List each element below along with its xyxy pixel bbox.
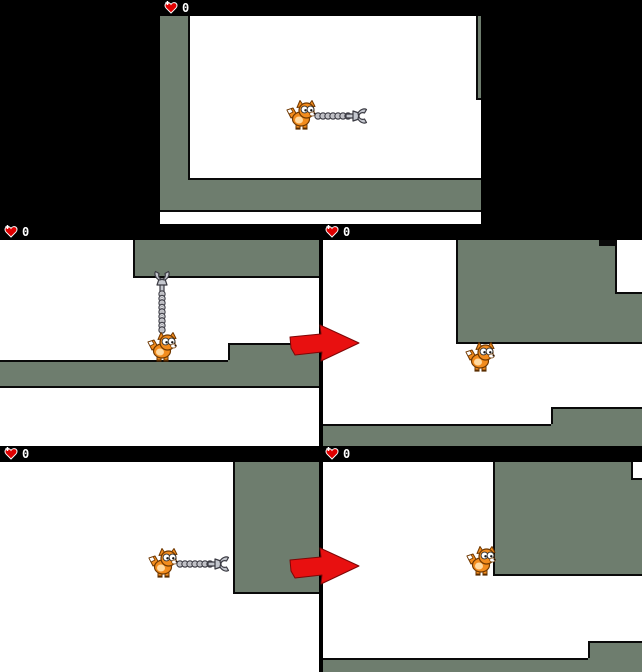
terrain-edge: [551, 407, 642, 409]
game-panel-bottom-right: 0: [321, 446, 642, 672]
terrain-edge: [160, 210, 481, 212]
hud-bar: 0: [321, 446, 642, 462]
terrain-floor: [0, 360, 319, 388]
terrain-edge: [188, 16, 190, 180]
game-viewport-bottom-left[interactable]: [0, 462, 321, 672]
hud-bar: 0: [160, 0, 481, 16]
terrain-floor: [323, 424, 642, 446]
game-viewport-top[interactable]: [160, 16, 481, 224]
terrain-edge: [0, 386, 319, 388]
terrain-edge: [228, 343, 230, 360]
terrain-edge: [615, 240, 617, 294]
grapple-claw-icon: [346, 109, 367, 123]
heart-icon: [325, 225, 339, 238]
fox-sprite: [287, 101, 316, 130]
game-panel-middle-right: 0: [321, 224, 642, 446]
terrain-edge: [599, 240, 617, 246]
terrain-edge: [0, 360, 228, 362]
health-counter: 0: [182, 1, 189, 15]
terrain-edge: [233, 462, 235, 594]
health-counter: 0: [343, 447, 350, 461]
game-viewport-bottom-right[interactable]: [321, 462, 642, 672]
red-arrow-icon: [288, 545, 362, 587]
game-panel-bottom-left: 0: [0, 446, 321, 672]
fox-player-sprite: [286, 98, 368, 132]
terrain-edge: [615, 292, 642, 294]
health-counter: 0: [22, 225, 29, 239]
health-counter: 0: [343, 225, 350, 239]
terrain-edge: [233, 592, 319, 594]
red-arrow-icon: [288, 322, 362, 364]
terrain-edge: [456, 240, 458, 344]
grapple-claw-icon: [155, 272, 169, 293]
terrain-edge: [133, 240, 135, 278]
fox-sprite: [149, 549, 178, 578]
fox-player-sprite: [465, 342, 495, 372]
fox-player-sprite: [148, 546, 230, 580]
terrain-edge: [631, 478, 642, 480]
hud-bar: 0: [321, 224, 642, 240]
heart-icon: [164, 1, 178, 14]
terrain-floor: [160, 180, 481, 210]
heart-icon: [325, 447, 339, 460]
terrain-edge: [493, 574, 642, 576]
heart-icon: [4, 447, 18, 460]
fox-player-sprite: [466, 546, 496, 576]
fox-player-sprite: [147, 270, 177, 364]
game-screens-collage: 0: [0, 0, 642, 672]
game-viewport-middle-right[interactable]: [321, 240, 642, 446]
fox-sprite: [466, 343, 495, 372]
terrain-notch: [615, 240, 642, 294]
terrain-block: [493, 462, 642, 576]
terrain-right-wall: [476, 16, 481, 100]
terrain-floor: [323, 658, 642, 672]
chain-links: [159, 291, 165, 333]
game-panel-middle-left: 0: [0, 224, 321, 446]
grapple-claw-icon: [208, 557, 229, 571]
heart-icon: [4, 225, 18, 238]
terrain-edge: [588, 641, 642, 643]
terrain-edge: [323, 424, 551, 426]
game-panel-top: 0: [160, 0, 481, 224]
fox-sprite: [467, 547, 496, 576]
hud-bar: 0: [0, 446, 321, 462]
terrain-edge: [323, 658, 588, 660]
game-viewport-middle-left[interactable]: [0, 240, 321, 446]
health-counter: 0: [22, 447, 29, 461]
fox-sprite: [148, 333, 177, 362]
terrain-edge: [190, 178, 481, 180]
hud-bar: 0: [0, 224, 321, 240]
